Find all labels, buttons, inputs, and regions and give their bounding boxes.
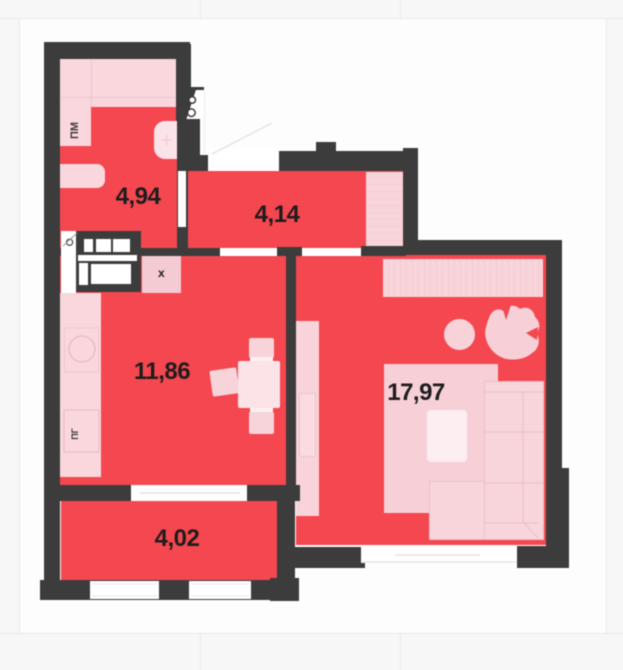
svg-text:ПГ: ПГ [70, 428, 80, 440]
